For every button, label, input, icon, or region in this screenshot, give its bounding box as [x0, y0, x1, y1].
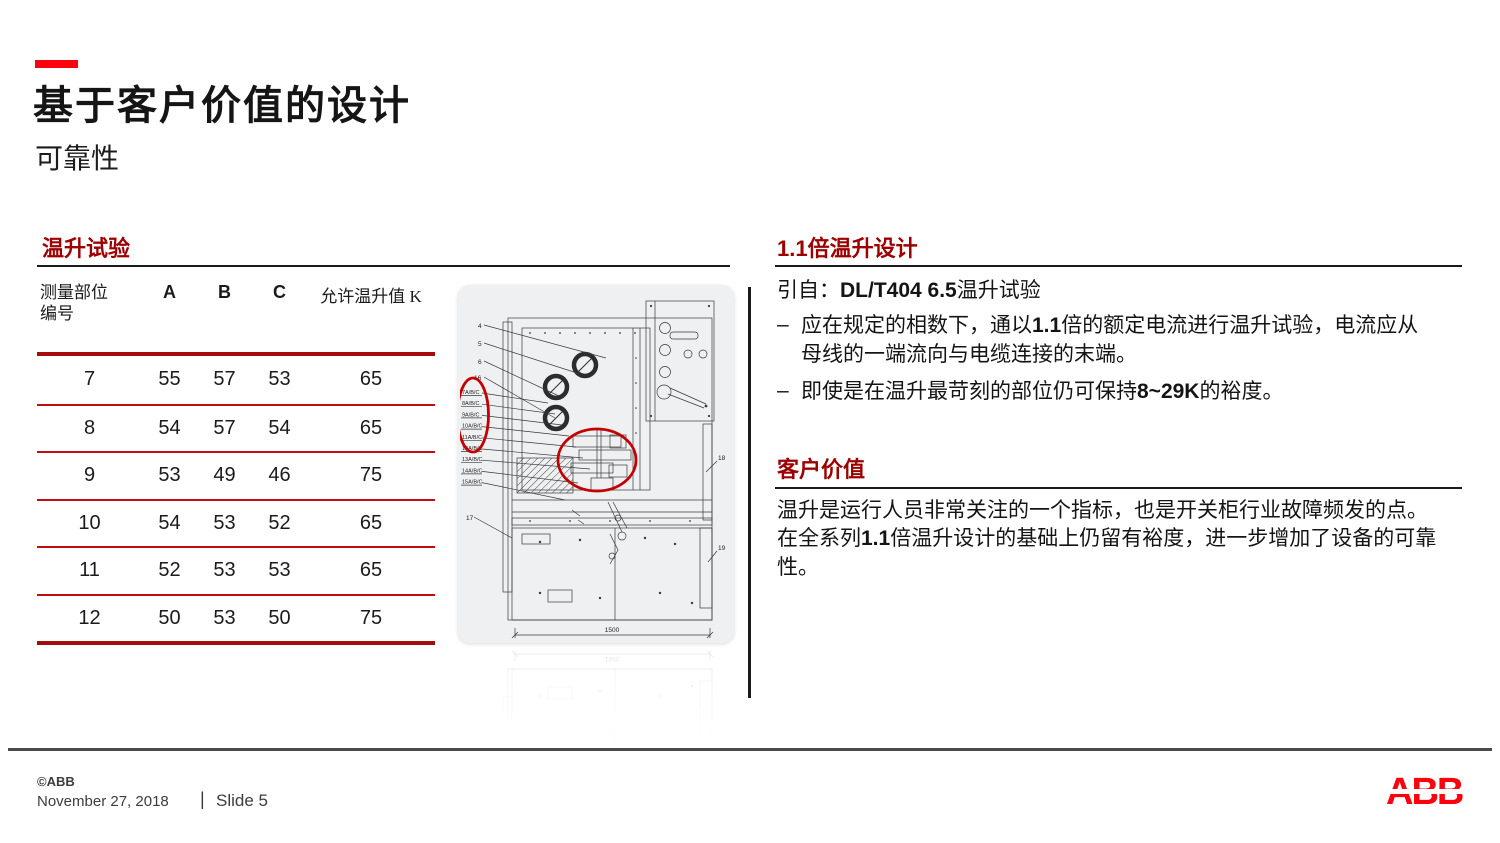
- svg-text:11A/B/C: 11A/B/C: [462, 435, 482, 441]
- bullet-list: –应在规定的相数下，通以1.1倍的额定电流进行温升试验，电流应从母线的一端流向与…: [777, 311, 1425, 415]
- table-row: 755575365: [37, 356, 435, 404]
- switchgear-cad-drawing: 7A/B/C 8A/B/C 9A/B/C 10A/B/C 11A/B/C 12A…: [460, 288, 732, 640]
- cable-compartment: [512, 500, 712, 620]
- page-subtitle: 可靠性: [35, 137, 119, 177]
- bullet-item: –应在规定的相数下，通以1.1倍的额定电流进行温升试验，电流应从母线的一端流向与…: [777, 311, 1425, 368]
- right-section2-rule: [775, 487, 1462, 489]
- reflection-fade: [452, 647, 742, 753]
- right-section2-heading: 客户价值: [777, 452, 865, 484]
- right-section1-heading: 1.1倍温升设计: [777, 231, 918, 263]
- switchgear-diagram-card: 7A/B/C 8A/B/C 9A/B/C 10A/B/C 11A/B/C 12A…: [458, 285, 734, 643]
- footer-separator: |: [200, 789, 205, 810]
- accent-dash: [35, 60, 78, 68]
- copyright-text: ©ABB: [37, 774, 75, 789]
- svg-text:10A/B/C: 10A/B/C: [462, 424, 483, 430]
- bullet-item: –即使是在温升最苛刻的部位仍可保持8~29K的裕度。: [777, 377, 1425, 406]
- svg-text:19: 19: [718, 545, 726, 552]
- svg-text:13A/B/C: 13A/B/C: [462, 457, 483, 463]
- standard-reference-line: 引自：DL/T404 6.5温升试验: [777, 274, 1437, 304]
- table-body: 755575365 854575465 953494675 1054535265…: [37, 352, 435, 645]
- svg-text:5: 5: [478, 341, 482, 348]
- col-header-b: B: [197, 282, 252, 303]
- svg-text:15A/B/C: 15A/B/C: [462, 480, 483, 486]
- width-dimension: 1500: [512, 627, 713, 638]
- table-header-row: 测量部位 编号 A B C 允许温升值 K: [37, 272, 435, 352]
- col-header-a: A: [142, 282, 197, 303]
- table-row: 953494675: [37, 451, 435, 499]
- left-section-heading: 温升试验: [42, 231, 130, 263]
- svg-text:9A/B/C: 9A/B/C: [462, 412, 479, 418]
- page-title: 基于客户价值的设计: [33, 73, 411, 131]
- svg-text:17: 17: [466, 515, 474, 522]
- svg-text:14A/B/C: 14A/B/C: [462, 468, 483, 474]
- svg-text:18: 18: [718, 455, 726, 462]
- col-header-id: 测量部位 编号: [37, 282, 142, 324]
- table-row: 1152535365: [37, 546, 435, 594]
- svg-text:4: 4: [478, 323, 482, 330]
- abb-logo-stripe: [1386, 789, 1472, 794]
- table-row: 854575465: [37, 404, 435, 452]
- col-header-k: 允许温升值 K: [307, 282, 435, 307]
- svg-text:8A/B/C: 8A/B/C: [462, 401, 479, 407]
- slide-number: Slide 5: [216, 791, 268, 811]
- customer-value-paragraph: 温升是运行人员非常关注的一个指标，也是开关柜行业故障频发的点。在全系列1.1倍温…: [777, 496, 1439, 581]
- abb-logo: ABB: [1386, 776, 1472, 810]
- right-section1-rule: [775, 265, 1462, 267]
- svg-text:6: 6: [478, 359, 482, 366]
- footer-rule: [8, 748, 1492, 751]
- svg-text:7A/B/C: 7A/B/C: [462, 390, 479, 396]
- temperature-rise-table: 测量部位 编号 A B C 允许温升值 K 755575365 85457546…: [37, 272, 435, 645]
- column-divider: [748, 287, 751, 698]
- presentation-slide: 基于客户价值的设计 可靠性 温升试验 测量部位 编号 A B C 允许温升值 K…: [0, 0, 1500, 843]
- left-heading-rule: [37, 265, 730, 267]
- col-header-c: C: [252, 282, 307, 303]
- mechanism-panel: [657, 323, 707, 409]
- footer-date: November 27, 2018: [37, 793, 169, 810]
- table-row: 1054535265: [37, 499, 435, 547]
- svg-text:1500: 1500: [605, 627, 620, 634]
- table-row: 1250535075: [37, 594, 435, 642]
